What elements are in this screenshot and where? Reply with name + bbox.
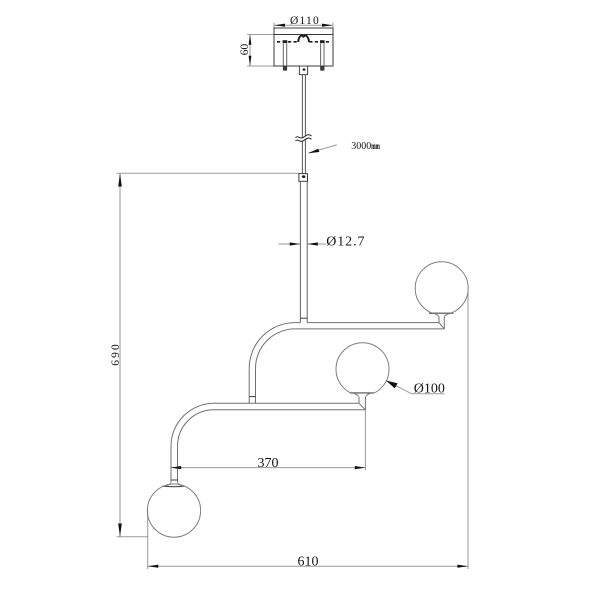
svg-text:Ø110: Ø110 [290, 15, 320, 27]
svg-text:Ø100: Ø100 [414, 382, 445, 397]
svg-text:Ø12.7: Ø12.7 [326, 234, 364, 249]
svg-text:3000: 3000 [351, 141, 371, 152]
svg-text:690: 690 [110, 344, 122, 366]
svg-text:mm: mm [371, 141, 380, 152]
svg-text:370: 370 [258, 456, 279, 471]
svg-text:610: 610 [298, 554, 319, 569]
svg-text:60: 60 [239, 44, 251, 56]
